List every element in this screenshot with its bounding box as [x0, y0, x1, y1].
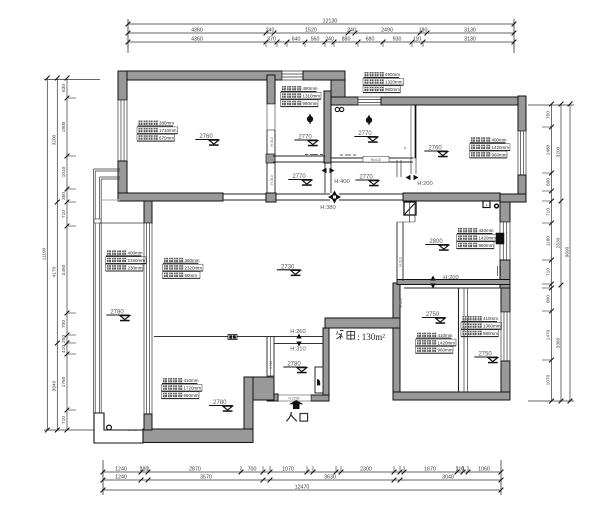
svg-text:370: 370 — [267, 37, 276, 43]
svg-text:410: 410 — [61, 345, 67, 353]
svg-text:360mm: 360mm — [185, 258, 200, 263]
svg-text:3200: 3200 — [556, 146, 562, 157]
svg-text:750: 750 — [546, 111, 552, 119]
svg-text:9690: 9690 — [565, 246, 571, 257]
svg-text:700: 700 — [248, 467, 257, 473]
svg-text:1420mm: 1420mm — [492, 145, 510, 150]
svg-text:600: 600 — [546, 178, 552, 186]
svg-text:2450: 2450 — [61, 264, 67, 275]
svg-text:670mm: 670mm — [159, 136, 174, 141]
svg-text:1670: 1670 — [424, 467, 436, 473]
svg-text:2780: 2780 — [110, 310, 124, 316]
svg-text:420mm: 420mm — [479, 228, 494, 233]
svg-text:1010: 1010 — [61, 166, 67, 177]
svg-text:240: 240 — [325, 37, 334, 43]
svg-text:490mm: 490mm — [385, 72, 400, 77]
svg-text:H:310: H:310 — [270, 175, 274, 184]
svg-text:640: 640 — [292, 37, 301, 43]
svg-text:3040: 3040 — [442, 475, 454, 481]
svg-text:1470: 1470 — [546, 329, 552, 340]
svg-text:11190: 11190 — [41, 247, 47, 260]
svg-text:2490: 2490 — [381, 28, 393, 34]
svg-text:180: 180 — [419, 28, 428, 34]
svg-text:2780: 2780 — [213, 400, 227, 406]
svg-text:930: 930 — [393, 37, 402, 43]
svg-text:1900: 1900 — [61, 121, 67, 132]
svg-text:410mm: 410mm — [483, 316, 498, 321]
svg-text:1240: 1240 — [115, 467, 127, 473]
svg-text:2320mm: 2320mm — [185, 265, 203, 270]
svg-text:H:380: H:380 — [320, 205, 335, 211]
svg-text:3570: 3570 — [200, 475, 212, 481]
svg-text:1070: 1070 — [546, 374, 552, 385]
svg-text:2760: 2760 — [428, 146, 442, 152]
svg-text:110: 110 — [413, 37, 421, 43]
svg-text:480mm: 480mm — [303, 86, 318, 91]
svg-text:3940: 3940 — [51, 380, 57, 391]
svg-text:H:310: H:310 — [399, 257, 403, 266]
svg-text:110: 110 — [456, 467, 464, 473]
svg-text:2770: 2770 — [359, 175, 373, 181]
svg-text:3200: 3200 — [51, 134, 57, 145]
svg-text:H:200: H:200 — [417, 181, 432, 187]
svg-text:410mm: 410mm — [438, 333, 453, 338]
svg-text:400mm: 400mm — [128, 251, 143, 256]
svg-text:H:310: H:310 — [270, 137, 274, 146]
svg-text:1240: 1240 — [115, 475, 127, 481]
svg-text:680: 680 — [366, 37, 375, 43]
svg-text:1760: 1760 — [61, 376, 67, 387]
svg-text:700: 700 — [61, 320, 67, 328]
svg-text:1480: 1480 — [546, 144, 552, 155]
svg-text:H:260: H:260 — [290, 329, 305, 335]
svg-text:240: 240 — [347, 28, 356, 34]
svg-text:2770: 2770 — [292, 174, 306, 180]
svg-text:H:310: H:310 — [269, 361, 273, 370]
svg-text:240: 240 — [266, 28, 275, 34]
svg-text:410mm: 410mm — [184, 378, 199, 383]
svg-text:960mm: 960mm — [438, 348, 453, 353]
svg-text:3630: 3630 — [324, 475, 336, 481]
svg-text:710: 710 — [61, 210, 67, 218]
svg-text:230mm: 230mm — [128, 265, 143, 270]
svg-text:650mm: 650mm — [184, 393, 199, 398]
svg-text:2870: 2870 — [189, 467, 201, 473]
svg-text:4360: 4360 — [191, 37, 203, 43]
svg-text:1310mm: 1310mm — [303, 94, 321, 99]
svg-text:180: 180 — [140, 467, 149, 473]
svg-text:50mm: 50mm — [185, 273, 198, 278]
svg-text:2150mm: 2150mm — [128, 258, 146, 263]
svg-text:400mm: 400mm — [492, 138, 507, 143]
svg-text:H:310: H:310 — [290, 347, 305, 353]
svg-text:12470: 12470 — [295, 485, 310, 491]
svg-text:960mm: 960mm — [479, 243, 494, 248]
svg-text:960mm: 960mm — [385, 87, 400, 92]
svg-text:1720mm: 1720mm — [184, 386, 202, 391]
svg-text:2750: 2750 — [426, 312, 440, 318]
svg-text:2300: 2300 — [360, 467, 372, 473]
svg-text:2770: 2770 — [298, 135, 312, 141]
svg-text:2750: 2750 — [478, 352, 492, 358]
svg-text:380mm: 380mm — [159, 121, 174, 126]
svg-text:800: 800 — [546, 295, 552, 303]
svg-text:1070: 1070 — [282, 467, 294, 473]
svg-text:-d-: -d- — [403, 146, 407, 150]
svg-text:2630: 2630 — [556, 237, 562, 248]
svg-text:630: 630 — [61, 84, 67, 92]
svg-text:4170: 4170 — [51, 266, 57, 277]
svg-text:710: 710 — [546, 268, 552, 276]
svg-text:3130: 3130 — [464, 28, 476, 34]
svg-text:350: 350 — [61, 192, 67, 200]
svg-text:2760: 2760 — [199, 134, 213, 140]
svg-text:980mm: 980mm — [483, 331, 498, 336]
svg-text:H:310: H:310 — [399, 298, 403, 307]
svg-text:1710mm: 1710mm — [159, 128, 177, 133]
svg-text:1180: 1180 — [546, 236, 552, 247]
svg-text:H:2200: H:2200 — [289, 397, 300, 401]
svg-text:2780: 2780 — [287, 362, 301, 368]
svg-text:880: 880 — [342, 37, 351, 43]
svg-text:560: 560 — [311, 37, 320, 43]
svg-text:90x11E: 90x11E — [371, 158, 382, 162]
svg-text:710: 710 — [61, 416, 67, 424]
svg-text:: 130m²: : 130m² — [357, 332, 385, 342]
svg-text:960mm: 960mm — [492, 152, 507, 157]
svg-text:2730: 2730 — [281, 265, 295, 271]
svg-text:12130: 12130 — [323, 19, 338, 25]
svg-text:H:200: H:200 — [443, 275, 458, 281]
svg-text:2770: 2770 — [358, 131, 372, 137]
svg-text:250: 250 — [61, 335, 67, 343]
svg-text:3130: 3130 — [464, 37, 476, 43]
svg-text:1060: 1060 — [478, 467, 490, 473]
svg-text:4360: 4360 — [191, 28, 203, 34]
svg-text:1420mm: 1420mm — [479, 236, 497, 241]
svg-text:1360mm: 1360mm — [483, 324, 501, 329]
svg-text:2800: 2800 — [429, 239, 443, 245]
svg-text:980mm: 980mm — [303, 101, 318, 106]
svg-text:3380: 3380 — [556, 337, 562, 348]
svg-text:H:400: H:400 — [334, 179, 349, 185]
svg-text:1520: 1520 — [305, 28, 317, 34]
svg-text:710: 710 — [546, 208, 552, 216]
svg-text:1420mm: 1420mm — [438, 340, 456, 345]
svg-text:1320mm: 1320mm — [385, 80, 403, 85]
